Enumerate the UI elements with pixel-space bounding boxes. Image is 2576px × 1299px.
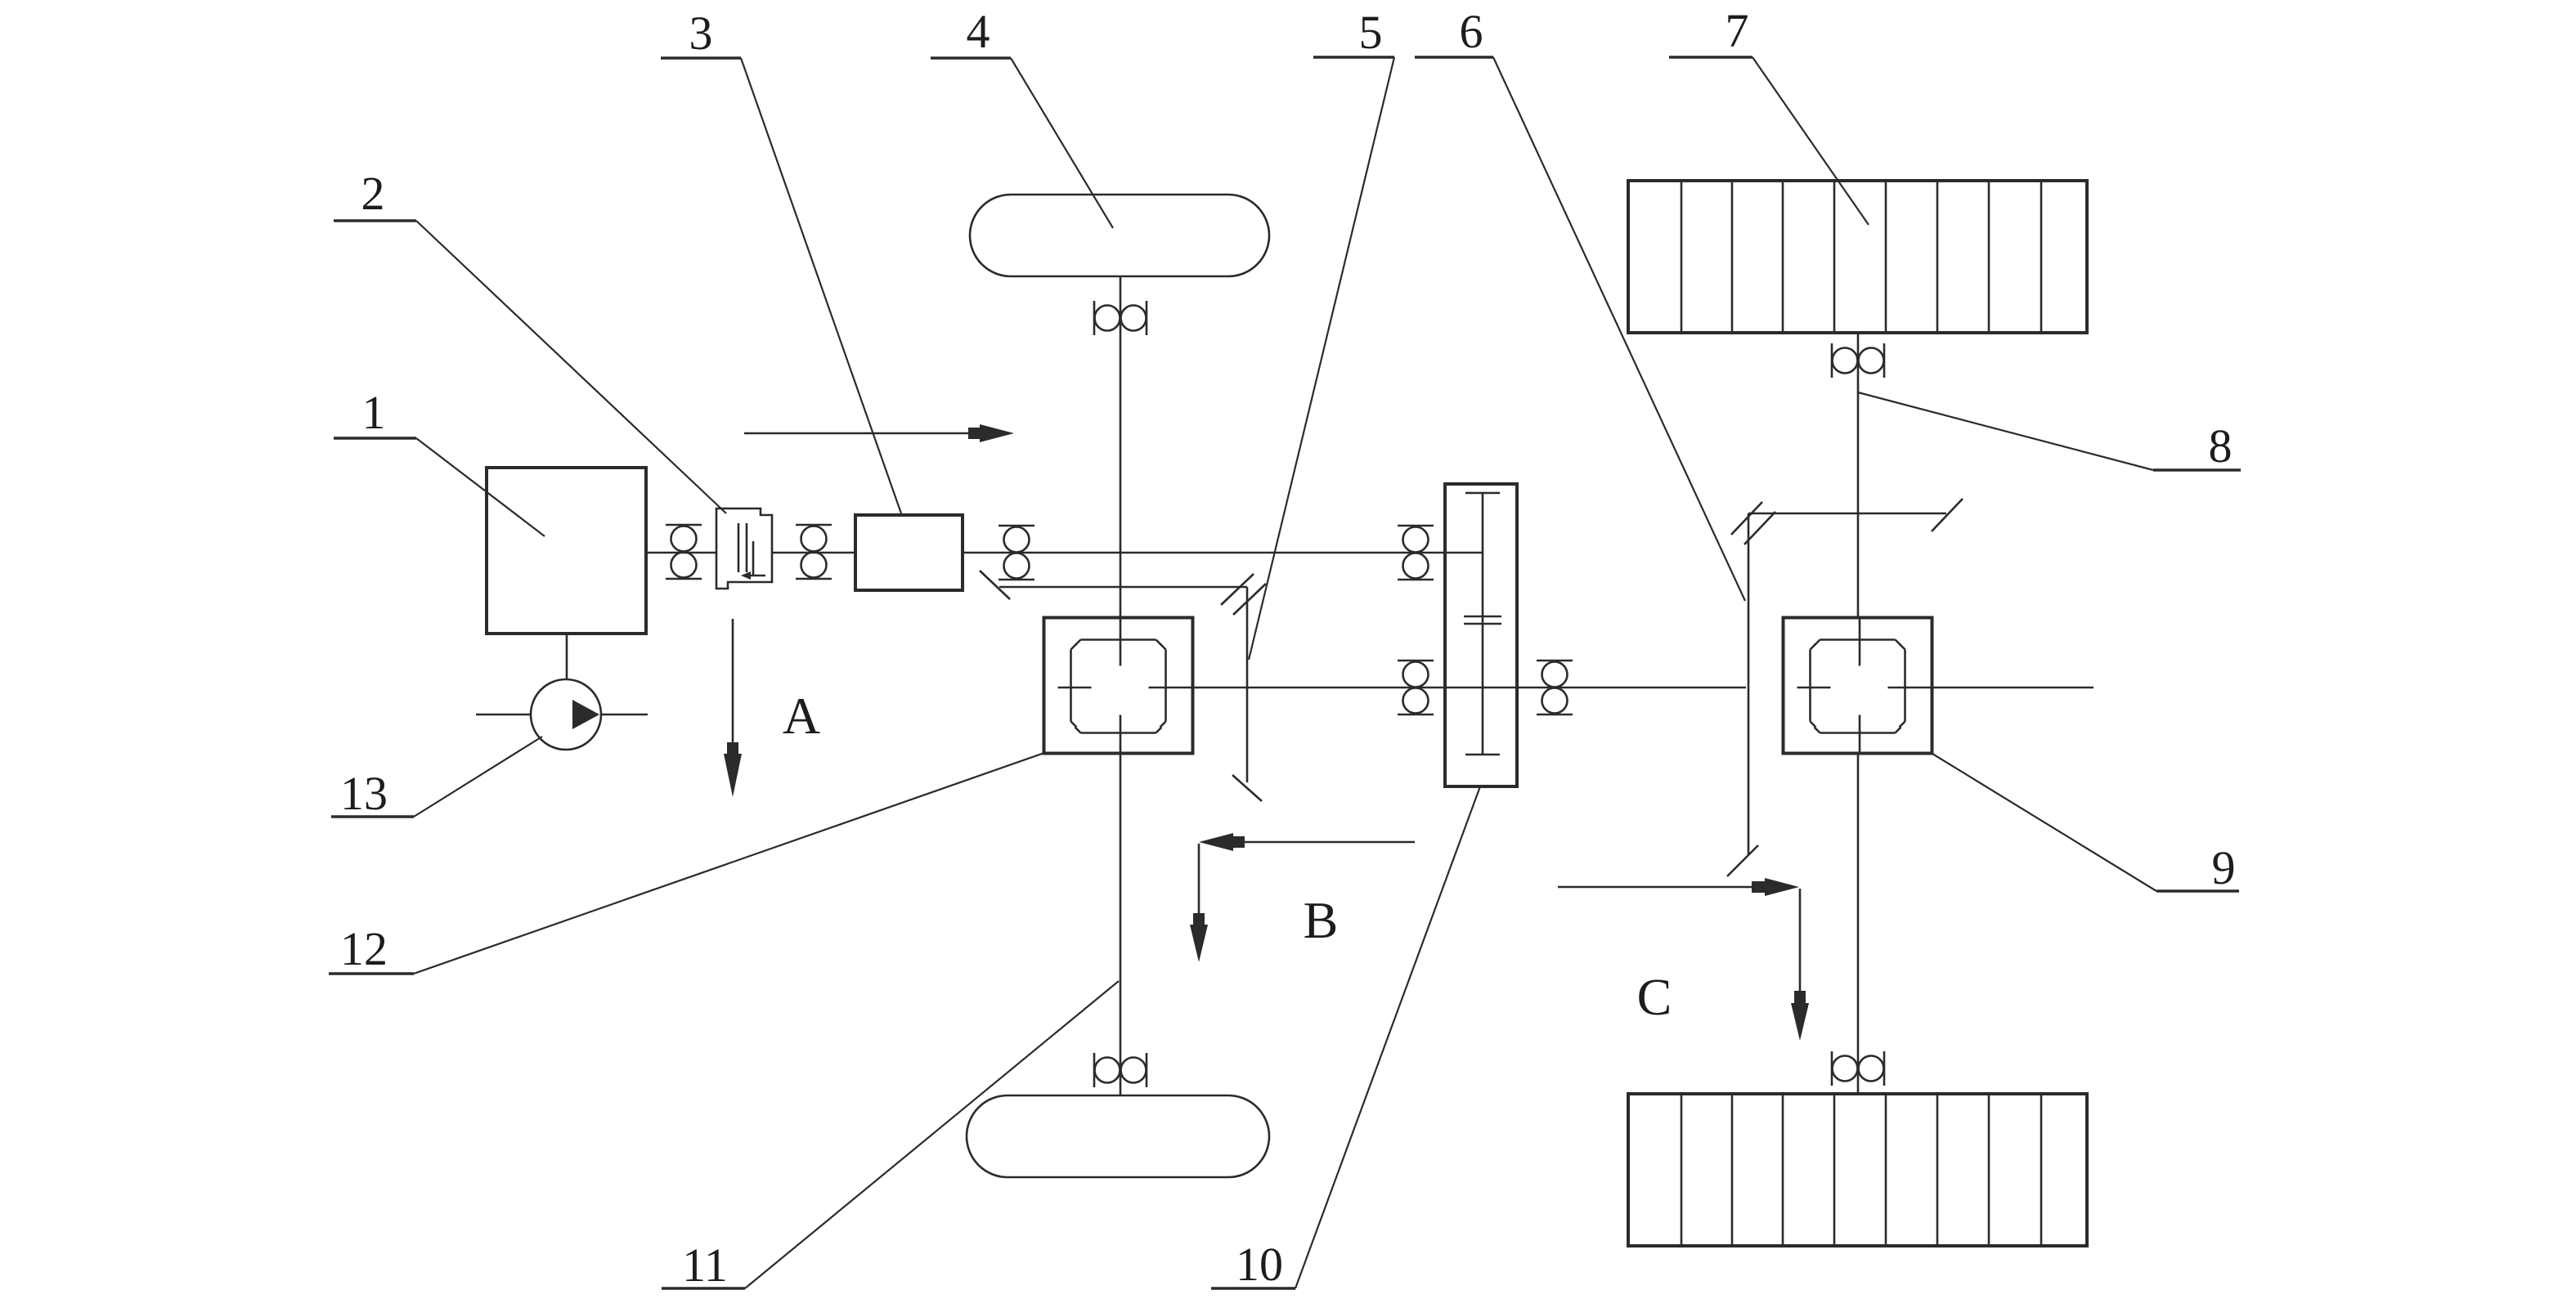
label-text-4: 4 xyxy=(967,5,990,58)
leader-line-5 xyxy=(1249,57,1394,660)
leader-line-2 xyxy=(416,221,726,513)
pump-flow-triangle-icon xyxy=(572,700,599,729)
gear-unit xyxy=(1445,484,1517,786)
transfer-box xyxy=(855,515,963,590)
bevel-mesh-mark xyxy=(1932,499,1963,531)
label-text-8: 8 xyxy=(2209,419,2233,473)
hydraulic-pump xyxy=(476,634,648,750)
label-text-9: 9 xyxy=(2212,841,2236,894)
arrow-down-icon xyxy=(724,754,742,797)
arrow-right-icon xyxy=(1765,878,1799,896)
leader-line-6 xyxy=(1493,57,1745,601)
label-text-11: 11 xyxy=(682,1239,728,1292)
label-text-3: 3 xyxy=(689,7,713,60)
drivetrain-diagram: A B C 1 2 3 4 5 xyxy=(0,0,2576,1299)
section-arrow-c xyxy=(1558,878,1809,1041)
bevel-drive-left xyxy=(980,571,1266,801)
label-text-10: 10 xyxy=(1236,1238,1283,1291)
part-label-2: 2 xyxy=(334,167,726,513)
leader-line-3 xyxy=(741,58,901,513)
tire-front-left xyxy=(970,195,1269,276)
label-text-2: 2 xyxy=(361,167,385,220)
leader-line-10 xyxy=(1295,786,1480,1288)
arrow-down-icon xyxy=(1791,1003,1809,1041)
label-text-12: 12 xyxy=(340,922,388,975)
arrow-down-icon xyxy=(1190,925,1208,962)
section-label-c: C xyxy=(1637,968,1672,1026)
differential-left xyxy=(1044,618,1193,754)
leader-line-9 xyxy=(1932,754,2156,891)
label-text-7: 7 xyxy=(1726,4,1749,57)
flow-arrow-top xyxy=(744,424,1014,442)
part-label-6: 6 xyxy=(1415,5,1745,601)
section-label-b: B xyxy=(1304,891,1339,949)
differential-right xyxy=(1784,618,1932,754)
leader-line-8 xyxy=(1858,392,2153,470)
label-text-13: 13 xyxy=(340,767,388,820)
leader-line-12 xyxy=(414,753,1044,974)
bevel-mesh-mark xyxy=(980,571,1010,599)
leader-line-1 xyxy=(416,438,545,536)
leader-line-11 xyxy=(745,981,1119,1288)
section-arrow-a xyxy=(724,619,742,797)
label-text-6: 6 xyxy=(1460,5,1483,58)
part-label-1: 1 xyxy=(334,386,545,536)
label-text-5: 5 xyxy=(1359,6,1383,59)
track-wheel-top-right xyxy=(1628,181,2087,333)
clutch-engage-arrow-icon xyxy=(741,571,751,580)
part-label-9: 9 xyxy=(1932,754,2239,894)
part-label-12: 12 xyxy=(329,753,1044,975)
part-label-7: 7 xyxy=(1669,4,1869,225)
diagram-canvas: A B C 1 2 3 4 5 xyxy=(0,0,2576,1299)
part-label-3: 3 xyxy=(661,7,901,513)
part-label-11: 11 xyxy=(662,981,1119,1292)
clutch-coupling xyxy=(716,508,772,589)
leader-line-4 xyxy=(1011,58,1113,228)
bevel-mesh-mark xyxy=(1727,845,1758,876)
part-label-13: 13 xyxy=(331,737,542,820)
leader-line-7 xyxy=(1752,57,1869,225)
track-wheel-bottom-right xyxy=(1628,1094,2087,1246)
engine-box xyxy=(487,468,646,634)
section-arrow-b xyxy=(1190,833,1415,962)
tire-rear-left xyxy=(967,1095,1269,1177)
arrow-right-icon xyxy=(980,424,1014,442)
arrow-left-icon xyxy=(1199,833,1233,851)
label-text-1: 1 xyxy=(362,386,386,439)
part-label-8: 8 xyxy=(1858,392,2241,473)
part-label-5: 5 xyxy=(1249,6,1394,660)
part-label-10: 10 xyxy=(1211,786,1480,1291)
leader-line-13 xyxy=(414,737,542,817)
section-label-a: A xyxy=(783,687,820,745)
